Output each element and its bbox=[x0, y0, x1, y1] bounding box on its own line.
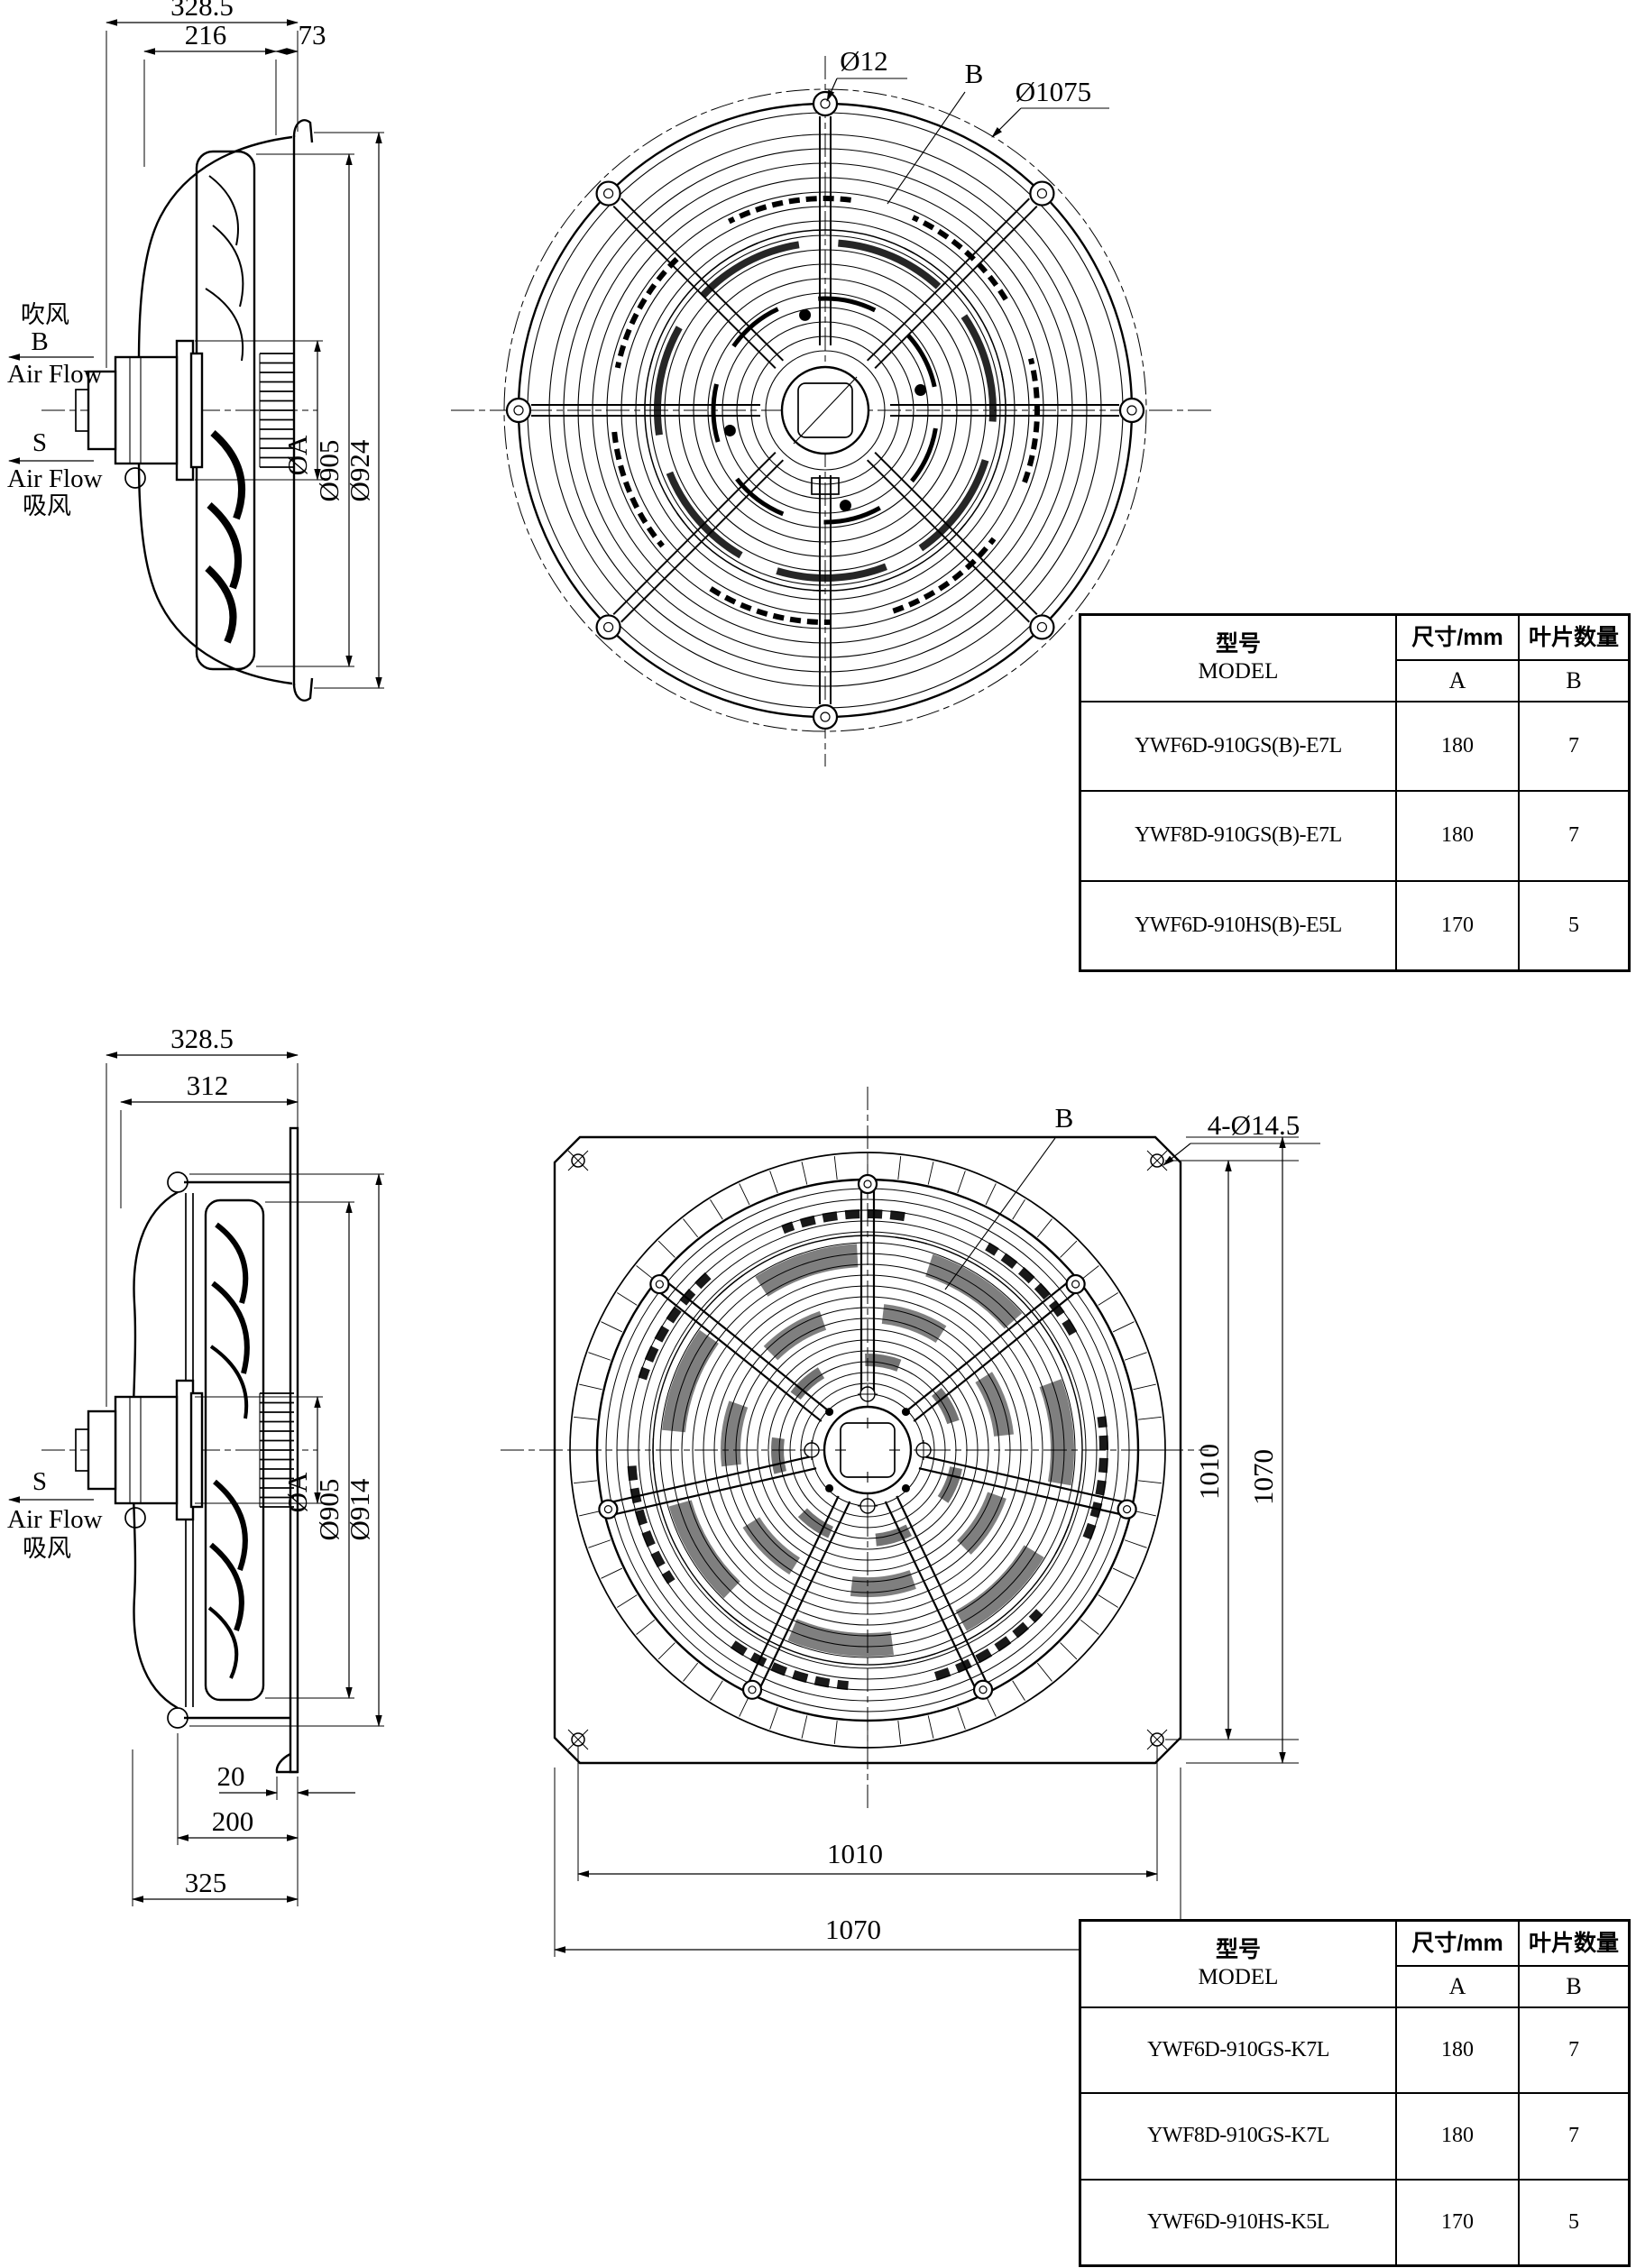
wire-dia-label: Ø12 bbox=[840, 45, 887, 77]
drawing-sheet: 328.5 216 73 ØA Ø905 Ø924 吹风 B Air Flow … bbox=[0, 0, 1636, 2268]
table-row-model: YWF8D-910GS-K7L bbox=[1081, 2092, 1395, 2178]
table-row-model: YWF6D-910HS(B)-E5L bbox=[1081, 880, 1395, 969]
header-model-en: MODEL bbox=[1199, 659, 1279, 685]
table-row-b: 7 bbox=[1518, 790, 1628, 879]
dim-hole-pitch-v: 1010 bbox=[1193, 1444, 1225, 1500]
table-row-a: 180 bbox=[1395, 790, 1518, 879]
header-col-b: B bbox=[1518, 1965, 1628, 2006]
header-model: 型号 MODEL bbox=[1081, 616, 1395, 701]
suck-label-cn: 吸风 bbox=[23, 1535, 71, 1562]
hole-note-label: 4-Ø14.5 bbox=[1208, 1109, 1300, 1141]
dim-bell-depth: 216 bbox=[185, 19, 227, 51]
mount-hole-tr bbox=[1147, 1151, 1167, 1171]
mount-hole-tl bbox=[568, 1151, 588, 1171]
spec-table-bottom: 型号 MODEL 尺寸/mm 叶片数量 A B YWF6D-910GS-K7L … bbox=[1079, 1919, 1631, 2267]
header-model: 型号 MODEL bbox=[1081, 1922, 1395, 2006]
dim-throat: 200 bbox=[212, 1805, 254, 1837]
table-row-a: 180 bbox=[1395, 2092, 1518, 2178]
header-col-a: A bbox=[1395, 659, 1518, 701]
dim-total-depth: 328.5 bbox=[170, 1023, 234, 1054]
dim-impeller-dia: Ø905 bbox=[313, 440, 345, 502]
header-model-cn: 型号 bbox=[1199, 631, 1279, 657]
motor-section bbox=[115, 1397, 177, 1503]
blade-ref-label: B bbox=[1055, 1102, 1074, 1134]
table-row-a: 180 bbox=[1395, 2006, 1518, 2092]
spec-table-top: 型号 MODEL 尺寸/mm 叶片数量 A B YWF6D-910GS(B)-E… bbox=[1079, 613, 1631, 972]
table-row-b: 5 bbox=[1518, 2179, 1628, 2264]
dim-lip: 20 bbox=[217, 1760, 245, 1792]
suck-label-cn: 吸风 bbox=[23, 492, 71, 519]
header-size: 尺寸/mm bbox=[1395, 1922, 1518, 1965]
dim-hub-dia: ØA bbox=[281, 435, 313, 475]
bottom-front-view: B 4-Ø14.5 1010 1070 1010 1070 bbox=[501, 1087, 1320, 1957]
table-row-b: 7 bbox=[1518, 701, 1628, 790]
suck-label-en: Air Flow bbox=[7, 1505, 103, 1534]
suck-code: S bbox=[32, 428, 47, 457]
header-model-en: MODEL bbox=[1199, 1965, 1279, 1991]
table-row-model: YWF6D-910HS-K5L bbox=[1081, 2179, 1395, 2264]
table-row-b: 7 bbox=[1518, 2006, 1628, 2092]
blow-label-cn: 吹风 bbox=[21, 301, 69, 328]
blow-code: B bbox=[31, 327, 48, 356]
table-row-b: 5 bbox=[1518, 880, 1628, 969]
header-col-b: B bbox=[1518, 659, 1628, 701]
header-size: 尺寸/mm bbox=[1395, 616, 1518, 659]
blade-ref-label: B bbox=[965, 58, 984, 89]
header-qty: 叶片数量 bbox=[1518, 616, 1628, 659]
dim-ring-dia: Ø924 bbox=[344, 439, 375, 501]
table-row-a: 180 bbox=[1395, 701, 1518, 790]
dim-plate-size-v: 1070 bbox=[1247, 1449, 1279, 1505]
dim-impeller-dia: Ø905 bbox=[313, 1479, 345, 1541]
header-qty: 叶片数量 bbox=[1518, 1922, 1628, 1965]
header-col-a: A bbox=[1395, 1965, 1518, 2006]
top-side-view: 328.5 216 73 ØA Ø905 Ø924 吹风 B Air Flow … bbox=[7, 0, 384, 701]
table-row-model: YWF6D-910GS-K7L bbox=[1081, 2006, 1395, 2092]
bottom-side-view: 328.5 312 ØA Ø905 Ø914 20 200 32 bbox=[7, 1023, 384, 1906]
blow-label-en: Air Flow bbox=[7, 360, 103, 389]
table-row-a: 170 bbox=[1395, 2179, 1518, 2264]
dim-ring-dia: Ø914 bbox=[344, 1478, 375, 1540]
table-row-model: YWF8D-910GS(B)-E7L bbox=[1081, 790, 1395, 879]
suck-code: S bbox=[32, 1467, 47, 1496]
dim-hub-dia: ØA bbox=[281, 1472, 313, 1512]
dim-bell-depth: 312 bbox=[187, 1070, 229, 1101]
table-row-model: YWF6D-910GS(B)-E7L bbox=[1081, 701, 1395, 790]
motor-section bbox=[115, 357, 177, 464]
dim-lip-depth: 73 bbox=[299, 19, 326, 51]
suck-label-en: Air Flow bbox=[7, 464, 103, 493]
table-row-a: 170 bbox=[1395, 880, 1518, 969]
table-row-b: 7 bbox=[1518, 2092, 1628, 2178]
dim-hole-pitch-h: 1010 bbox=[827, 1838, 883, 1869]
header-model-cn: 型号 bbox=[1199, 1937, 1279, 1963]
dim-plate-size-h: 1070 bbox=[825, 1914, 881, 1945]
dim-flange: 325 bbox=[185, 1867, 227, 1898]
guard-dia-label: Ø1075 bbox=[1016, 76, 1091, 107]
